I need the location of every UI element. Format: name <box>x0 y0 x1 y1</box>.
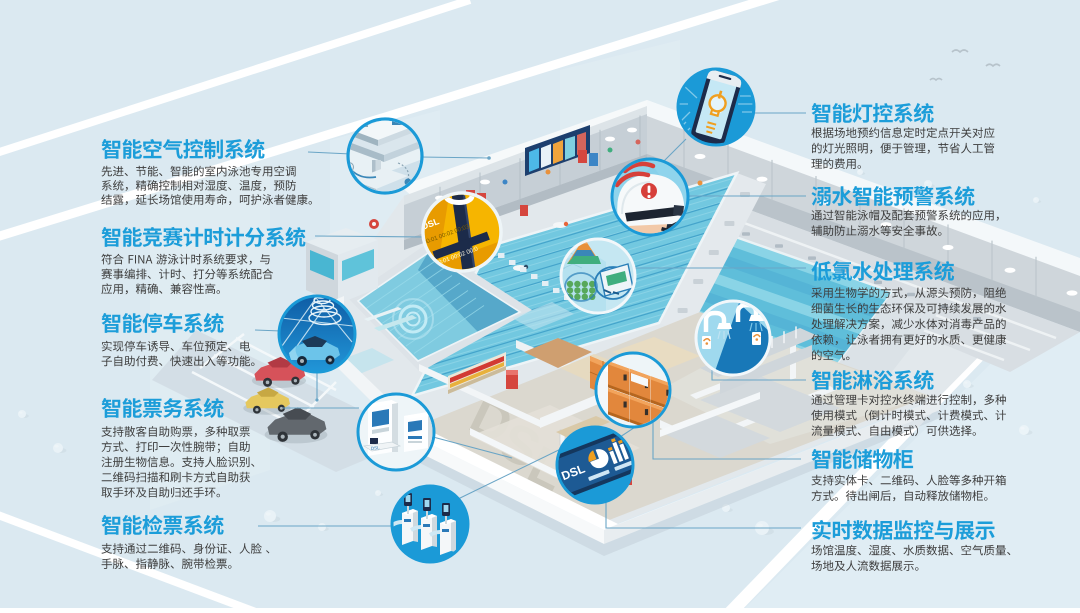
svg-text:DSL: DSL <box>371 445 381 451</box>
